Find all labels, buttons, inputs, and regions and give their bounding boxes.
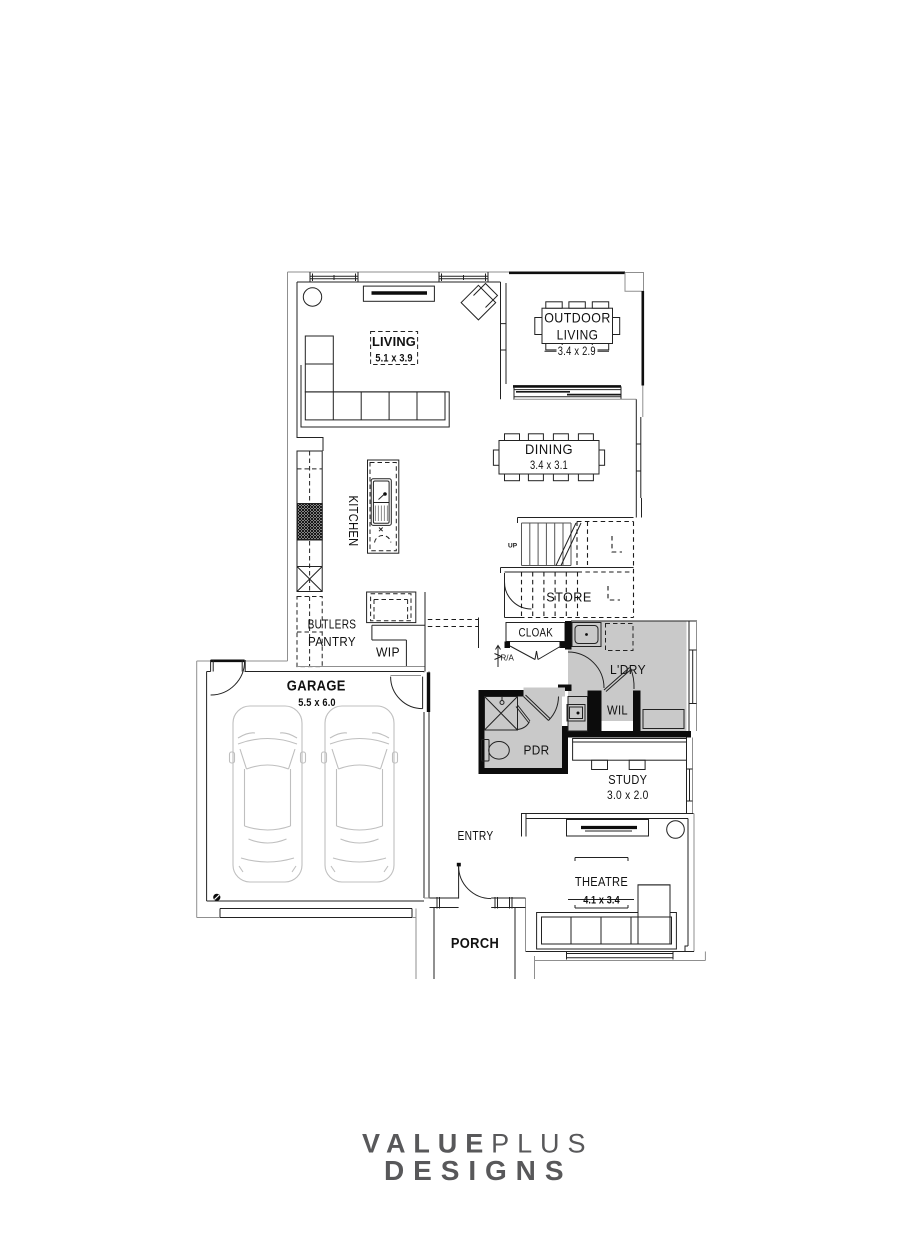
svg-text:STUDY: STUDY: [608, 772, 647, 787]
svg-text:BUTLERS: BUTLERS: [308, 617, 357, 632]
svg-text:PANTRY: PANTRY: [308, 634, 356, 649]
svg-text:LIVING: LIVING: [557, 327, 599, 343]
svg-text:3.0 x 2.0: 3.0 x 2.0: [607, 790, 649, 802]
svg-text:ENTRY: ENTRY: [458, 828, 494, 843]
svg-text:VALUEPLUS: VALUEPLUS: [362, 1129, 593, 1159]
svg-text:THEATRE: THEATRE: [575, 874, 628, 889]
svg-text:R/A: R/A: [501, 654, 515, 663]
svg-text:WIP: WIP: [376, 645, 400, 660]
svg-text:WIL: WIL: [607, 703, 628, 718]
svg-text:GARAGE: GARAGE: [287, 679, 346, 695]
svg-text:5.1 x 3.9: 5.1 x 3.9: [375, 353, 412, 365]
svg-text:DESIGNS: DESIGNS: [384, 1155, 573, 1186]
svg-text:STORE: STORE: [546, 590, 592, 605]
svg-text:CLOAK: CLOAK: [519, 628, 554, 640]
svg-text:PDR: PDR: [524, 743, 550, 758]
svg-text:LIVING: LIVING: [372, 334, 416, 349]
svg-text:UP: UP: [508, 543, 518, 550]
svg-text:PORCH: PORCH: [451, 936, 499, 952]
svg-text:3.4 x 2.9: 3.4 x 2.9: [558, 346, 596, 358]
svg-text:3.4 x 3.1: 3.4 x 3.1: [530, 460, 568, 472]
svg-text:OUTDOOR: OUTDOOR: [544, 310, 611, 326]
svg-text:DINING: DINING: [525, 441, 573, 457]
svg-text:KITCHEN: KITCHEN: [346, 496, 361, 547]
svg-text:4.1 x 3.4: 4.1 x 3.4: [583, 894, 620, 906]
svg-text:5.5 x 6.0: 5.5 x 6.0: [298, 697, 336, 709]
